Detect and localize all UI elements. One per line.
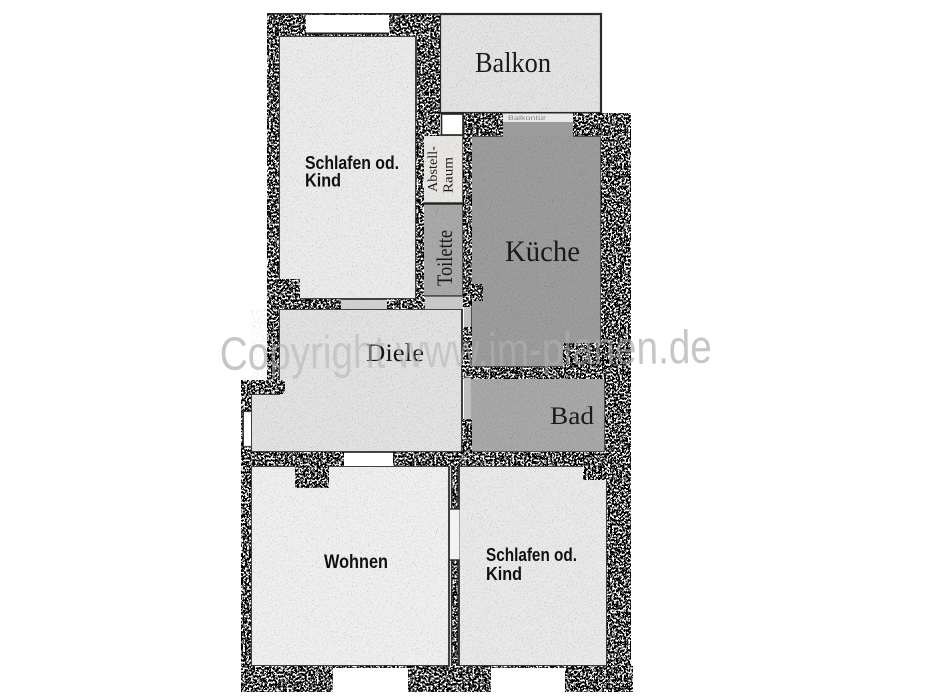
svg-text:Balkontür: Balkontür (508, 116, 546, 122)
svg-text:Copyright www.im-planen.de: Copyright www.im-planen.de (219, 320, 712, 380)
